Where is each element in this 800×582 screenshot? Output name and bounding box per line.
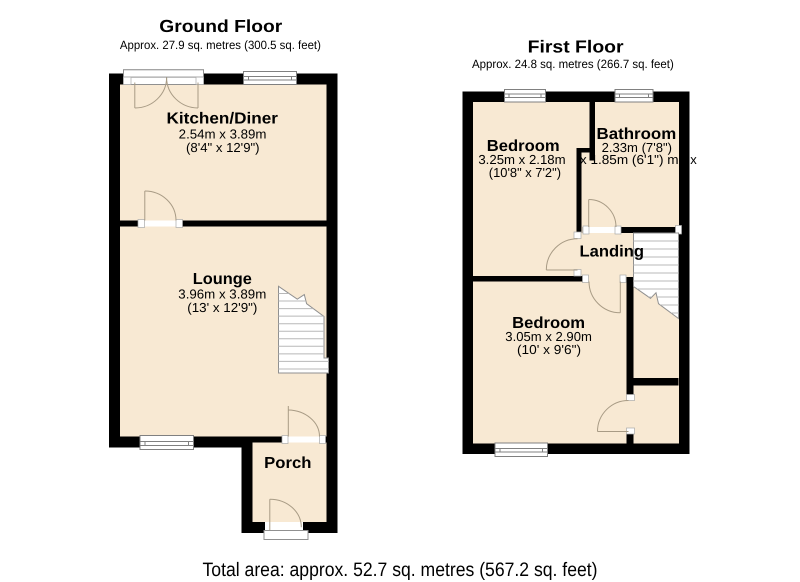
svg-text:(8'4" x 12'9"): (8'4" x 12'9") [186,140,260,155]
svg-text:Kitchen/Diner: Kitchen/Diner [167,111,278,128]
svg-text:Porch: Porch [264,455,311,472]
svg-text:Total area: approx. 52.7 sq. m: Total area: approx. 52.7 sq. metres (567… [203,559,598,581]
svg-text:Landing: Landing [580,244,645,261]
svg-text:x: x [690,152,697,167]
svg-text:Approx. 27.9 sq. metres (300.5: Approx. 27.9 sq. metres (300.5 sq. feet) [120,38,321,52]
svg-text:(10'8" x 7'2"): (10'8" x 7'2") [489,165,561,180]
svg-text:(10' x 9'6"): (10' x 9'6") [517,342,581,357]
svg-text:First Floor: First Floor [528,36,624,56]
svg-text:(13' x 12'9"): (13' x 12'9") [187,300,257,315]
svg-text:Ground Floor: Ground Floor [159,16,282,36]
svg-text:3.96m x 3.89m: 3.96m x 3.89m [178,286,266,301]
svg-text:2.33m (7'8"): 2.33m (7'8") [602,140,672,155]
svg-text:Approx. 24.8 sq. metres (266.7: Approx. 24.8 sq. metres (266.7 sq. feet) [472,57,674,71]
